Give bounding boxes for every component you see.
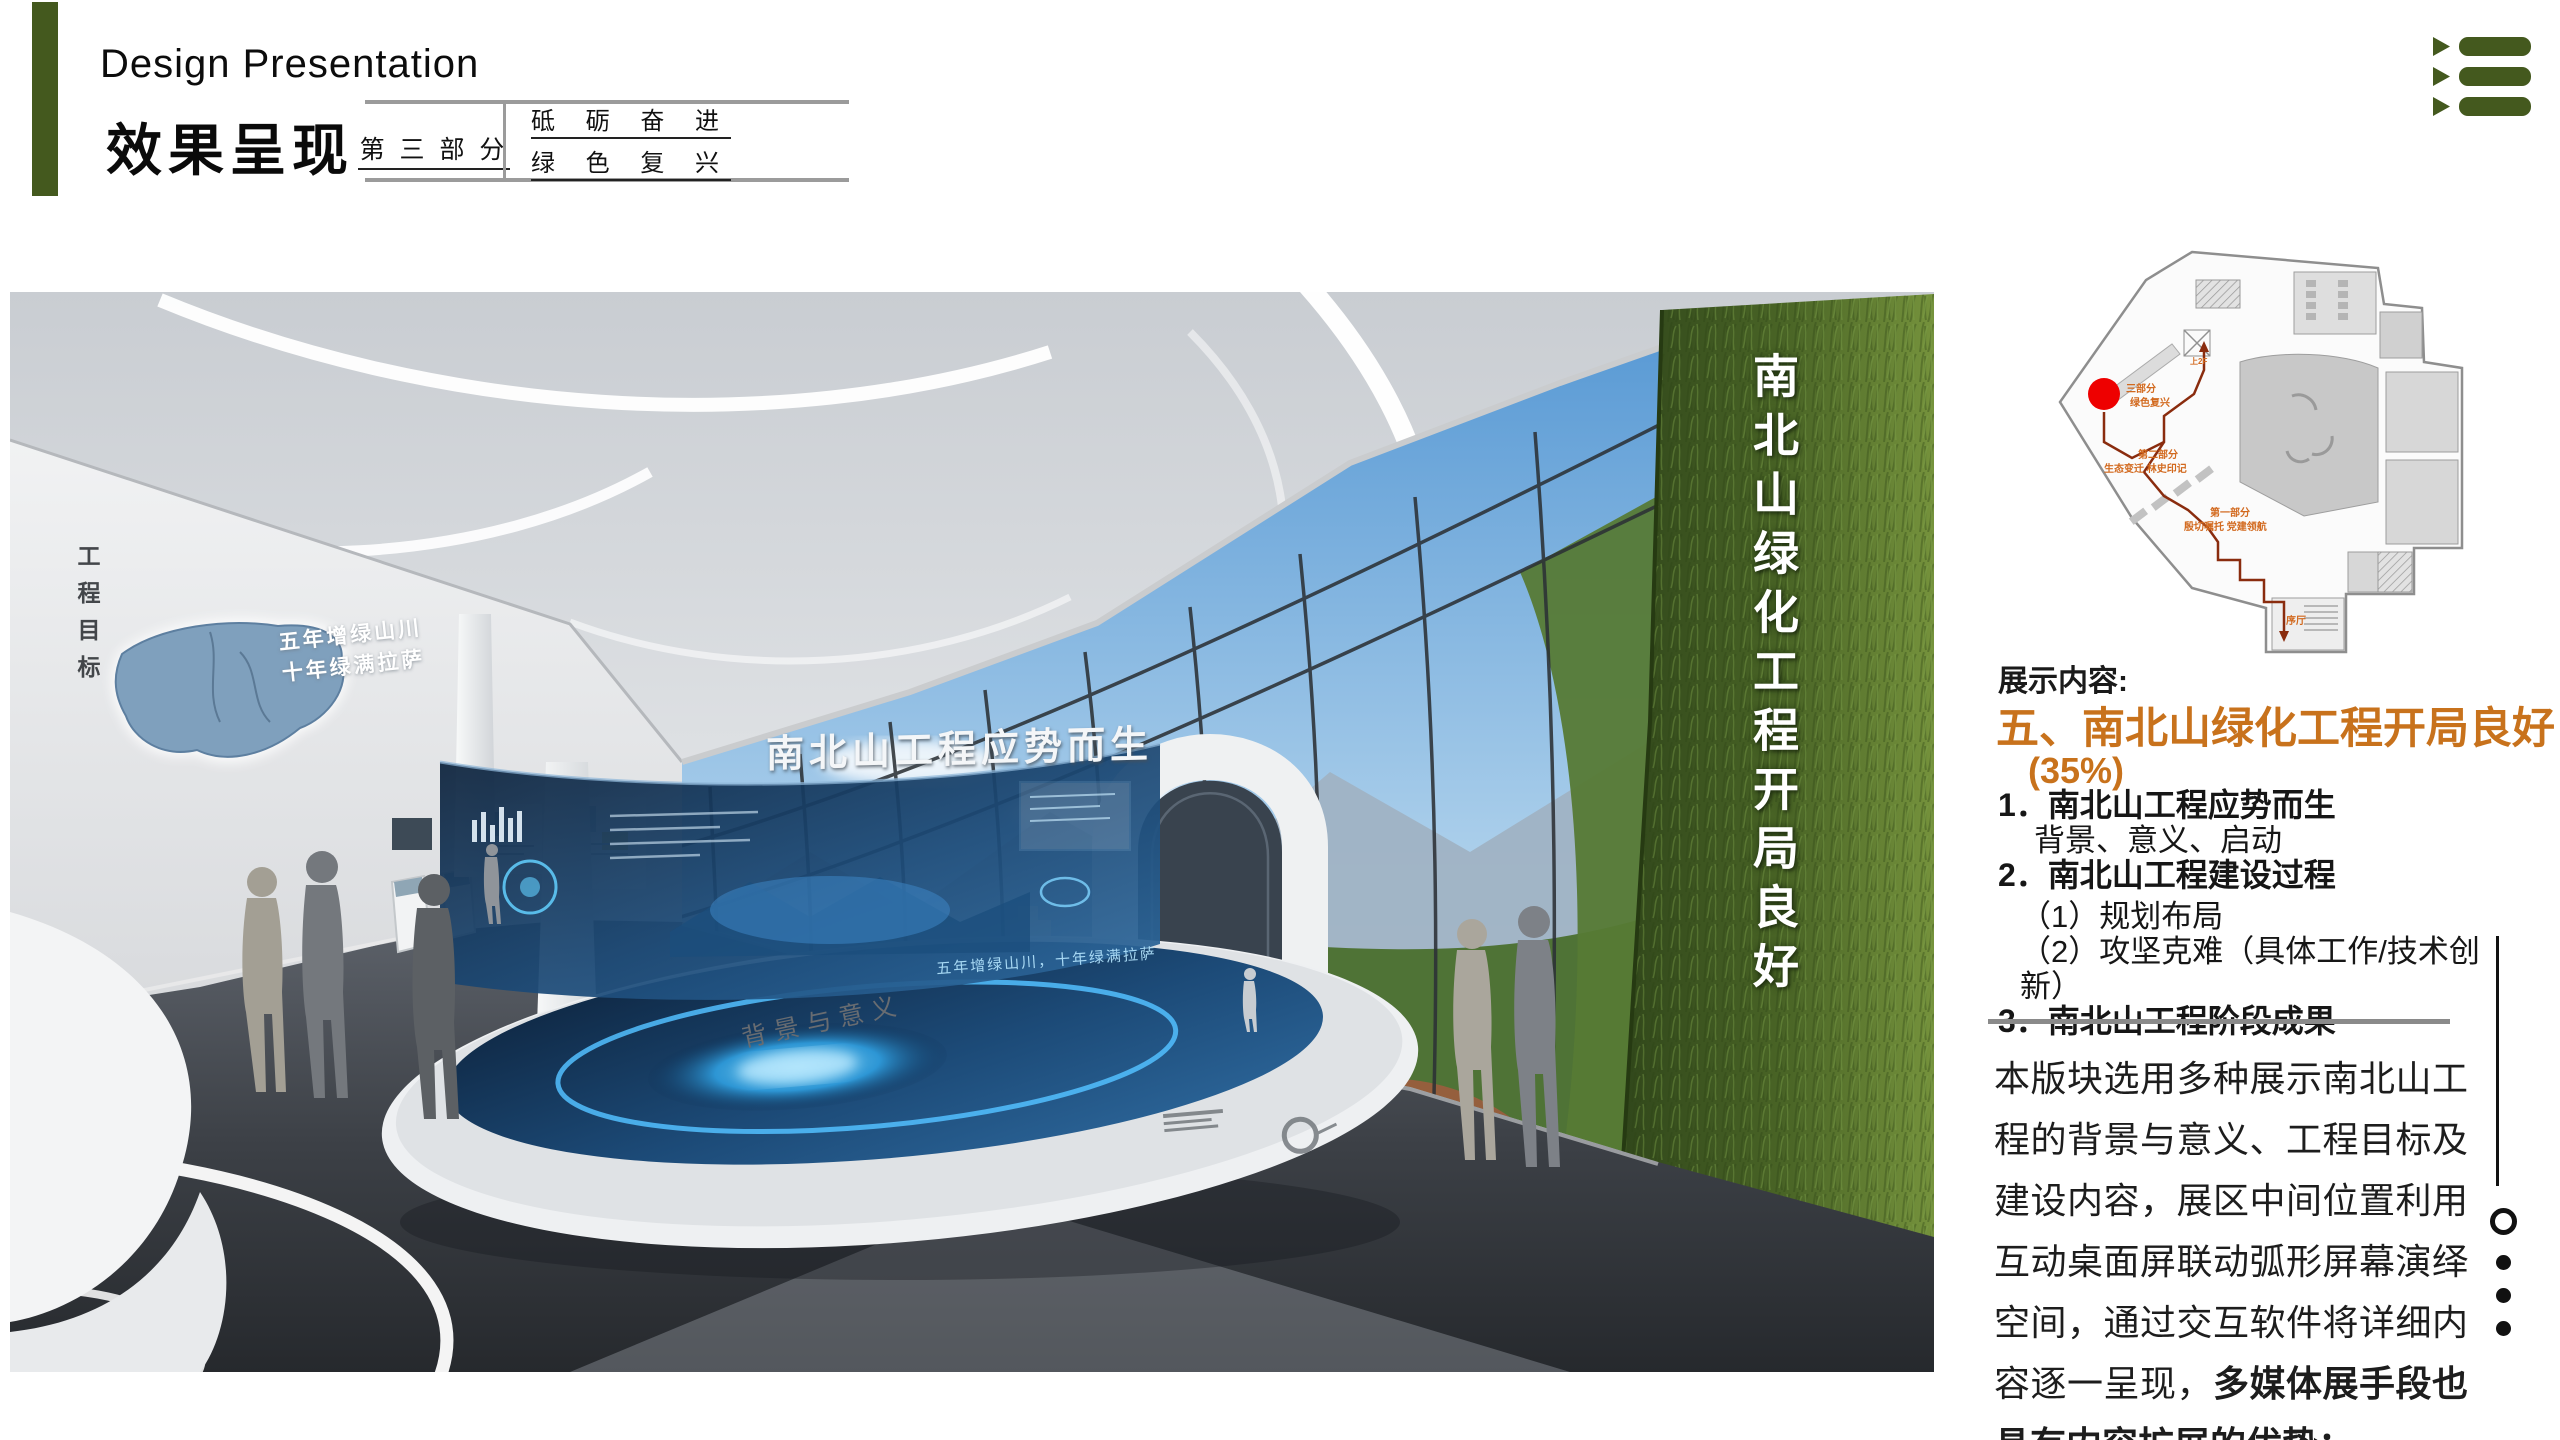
table-divider bbox=[503, 104, 506, 178]
plan-label-to2f: 上2F bbox=[2190, 356, 2207, 366]
paragraph-regular: 本版块选用多种展示南北山工程的背景与意义、工程目标及建设内容，展区中间位置利用互… bbox=[1994, 1058, 2468, 1404]
list-item: 2．南北山工程建设过程 bbox=[1998, 858, 2508, 893]
list-item: 1．南北山工程应势而生 bbox=[1998, 788, 2508, 823]
list-item: （2）攻坚克难（具体工作/技术创新） bbox=[1998, 934, 2508, 1004]
screen-3d-title: 南北山工程应势而生 bbox=[766, 713, 1153, 778]
page-dot[interactable] bbox=[2496, 1321, 2511, 1336]
part-number: 第 三 部 分 bbox=[358, 130, 511, 170]
section-divider bbox=[1988, 1019, 2450, 1024]
list-item: 背景、意义、启动 bbox=[1998, 823, 2508, 858]
hall-scene bbox=[10, 292, 1934, 1372]
wall-goal-vertical-text: 工程目标 bbox=[70, 544, 104, 692]
plan-label-part2-1: 第二部分 bbox=[2138, 448, 2178, 461]
part-theme-cell: 砥 砺 奋 进 绿 色 复 兴 bbox=[503, 104, 849, 178]
exhibition-hall-rendering: 工程目标 五年增绿山川 十年绿满拉萨 南北山工程应势而生 背景与意义 五年增绿山… bbox=[10, 292, 1934, 1372]
service-area bbox=[2196, 280, 2240, 308]
page-title: 效果呈现 bbox=[106, 106, 354, 187]
plan-label-part3-1: 三部分 bbox=[2126, 382, 2156, 395]
service-area bbox=[2378, 552, 2412, 592]
part-theme-line2: 绿 色 复 兴 bbox=[531, 143, 731, 181]
room bbox=[2380, 312, 2422, 358]
room bbox=[2386, 372, 2458, 452]
page-indicator bbox=[2488, 1208, 2518, 1354]
floor-plan: 三部分 绿色复兴 第二部分 生态变迁 林史印记 第一部分 殷切嘱托 党建领航 序… bbox=[2042, 246, 2482, 658]
part-theme-line1: 砥 砺 奋 进 bbox=[531, 101, 731, 139]
wall-tv bbox=[392, 818, 432, 850]
part-number-cell: 第 三 部 分 bbox=[365, 104, 503, 178]
page-dot[interactable] bbox=[2496, 1288, 2511, 1303]
page-dot[interactable] bbox=[2496, 1255, 2511, 1270]
content-heading: 五、南北山绿化工程开局良好 bbox=[1996, 694, 2555, 756]
green-wall-vertical-title: 南北山绿化工程开局良好 bbox=[1740, 352, 1806, 1001]
list-item: （1）规划布局 bbox=[1998, 899, 2508, 934]
current-location-marker bbox=[2088, 378, 2120, 410]
plan-label-part2-2: 生态变迁 林史印记 bbox=[2104, 462, 2187, 475]
vertical-rule bbox=[2496, 936, 2499, 1186]
description-paragraph: 本版块选用多种展示南北山工程的背景与意义、工程目标及建设内容，展区中间位置利用互… bbox=[1994, 1048, 2468, 1440]
accent-bar bbox=[32, 2, 58, 196]
plan-label-part3-2: 绿色复兴 bbox=[2130, 396, 2170, 409]
plan-label-part1-2: 殷切嘱托 党建领航 bbox=[2184, 520, 2267, 533]
list-menu-icon[interactable] bbox=[2433, 33, 2533, 123]
content-percentage: (35%) bbox=[2028, 750, 2124, 792]
content-item-list: 1．南北山工程应势而生 背景、意义、启动 2．南北山工程建设过程 （1）规划布局… bbox=[1998, 788, 2508, 1039]
room bbox=[2386, 460, 2458, 544]
page-dot-current[interactable] bbox=[2490, 1208, 2517, 1235]
presentation-slide: Design Presentation 效果呈现 第 三 部 分 砥 砺 奋 进… bbox=[0, 0, 2560, 1440]
central-hall bbox=[2240, 354, 2378, 516]
plan-label-lobby: 序厅 bbox=[2286, 614, 2306, 627]
part-table: 第 三 部 分 砥 砺 奋 进 绿 色 复 兴 bbox=[365, 100, 849, 182]
slide-subtitle: Design Presentation bbox=[100, 42, 479, 87]
plan-label-part1-1: 第一部分 bbox=[2210, 506, 2250, 519]
